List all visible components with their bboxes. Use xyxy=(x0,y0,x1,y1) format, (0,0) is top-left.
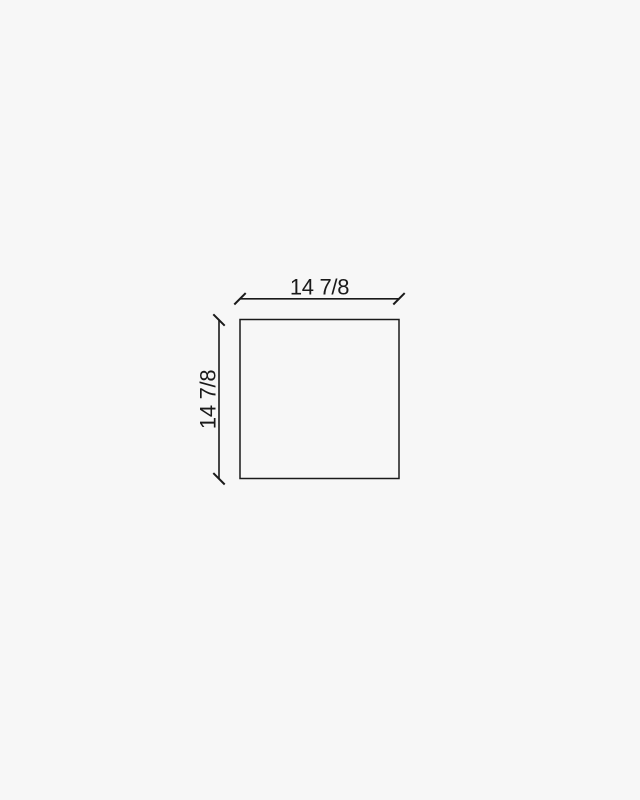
svg-text:14 7/8: 14 7/8 xyxy=(290,275,349,300)
svg-text:14 7/8: 14 7/8 xyxy=(196,370,221,429)
